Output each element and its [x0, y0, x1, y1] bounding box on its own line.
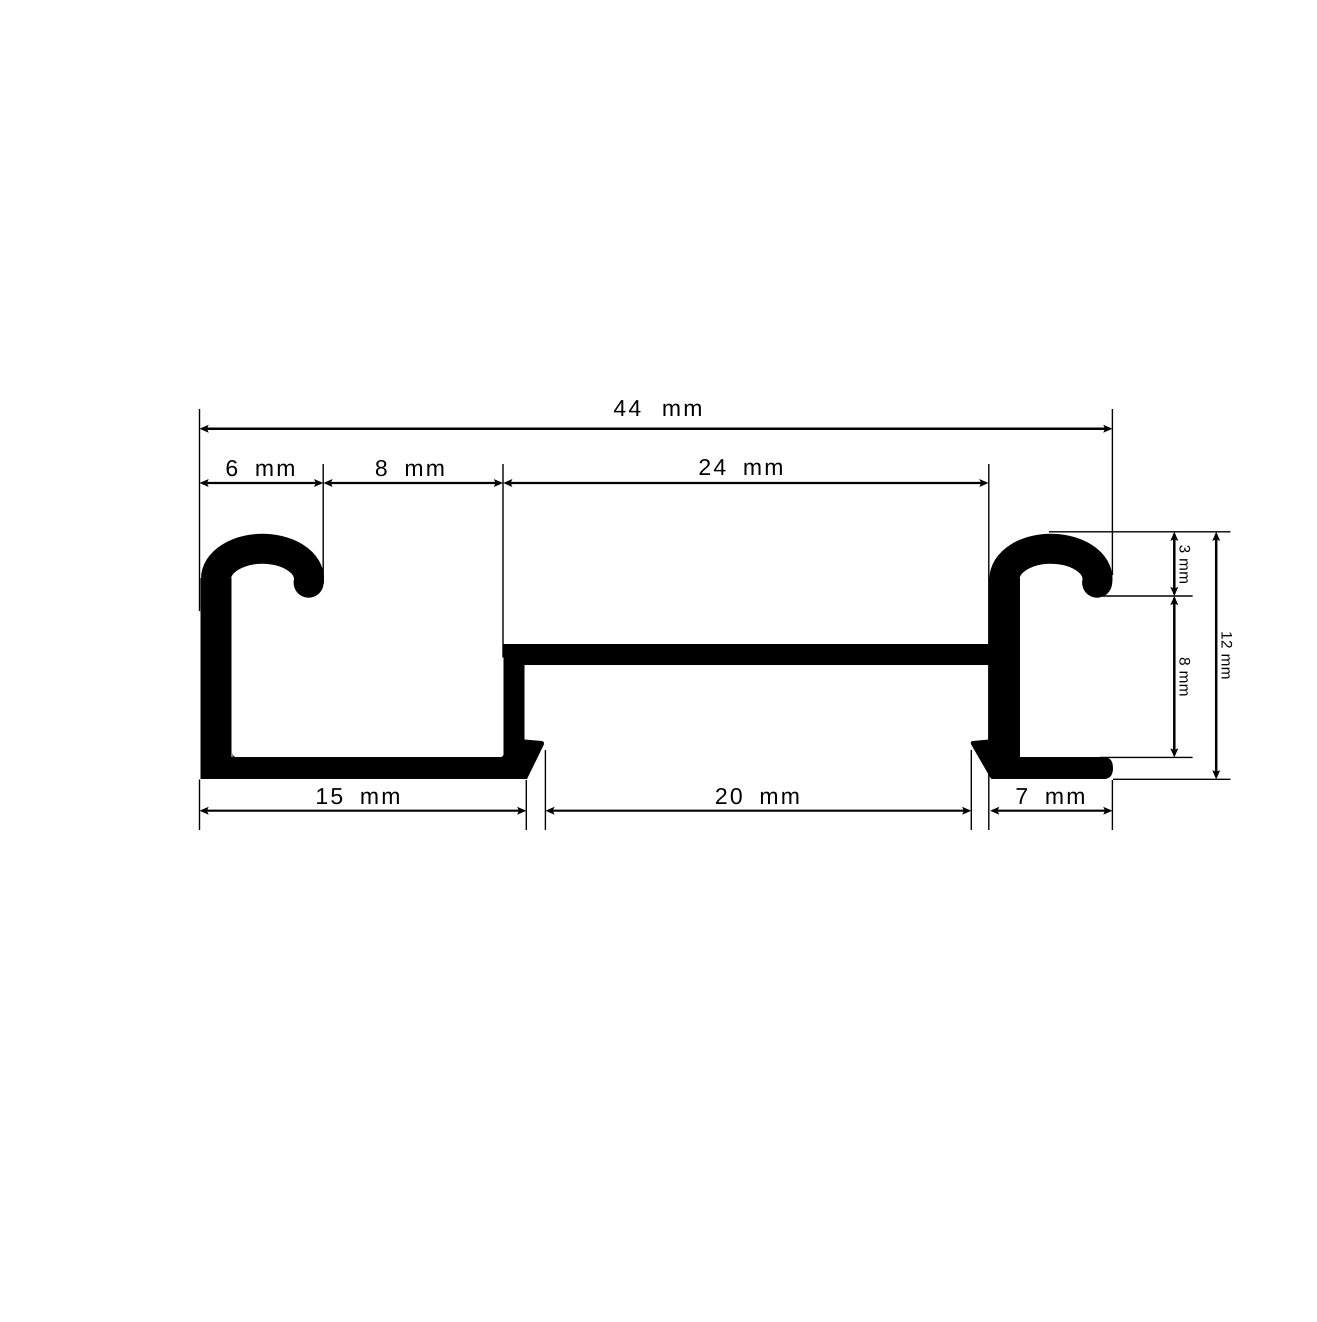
svg-text:7 mm: 7 mm [1015, 783, 1087, 809]
svg-text:20 mm: 20 mm [715, 783, 802, 809]
svg-text:24 mm: 24 mm [698, 454, 785, 480]
svg-text:8 mm: 8 mm [1176, 657, 1193, 697]
svg-text:44 mm: 44 mm [613, 395, 704, 421]
svg-text:3 mm: 3 mm [1176, 545, 1193, 585]
svg-text:15 mm: 15 mm [315, 783, 402, 809]
svg-text:12 mm: 12 mm [1218, 631, 1235, 680]
svg-text:8 mm: 8 mm [375, 455, 447, 481]
svg-text:6 mm: 6 mm [225, 455, 297, 481]
